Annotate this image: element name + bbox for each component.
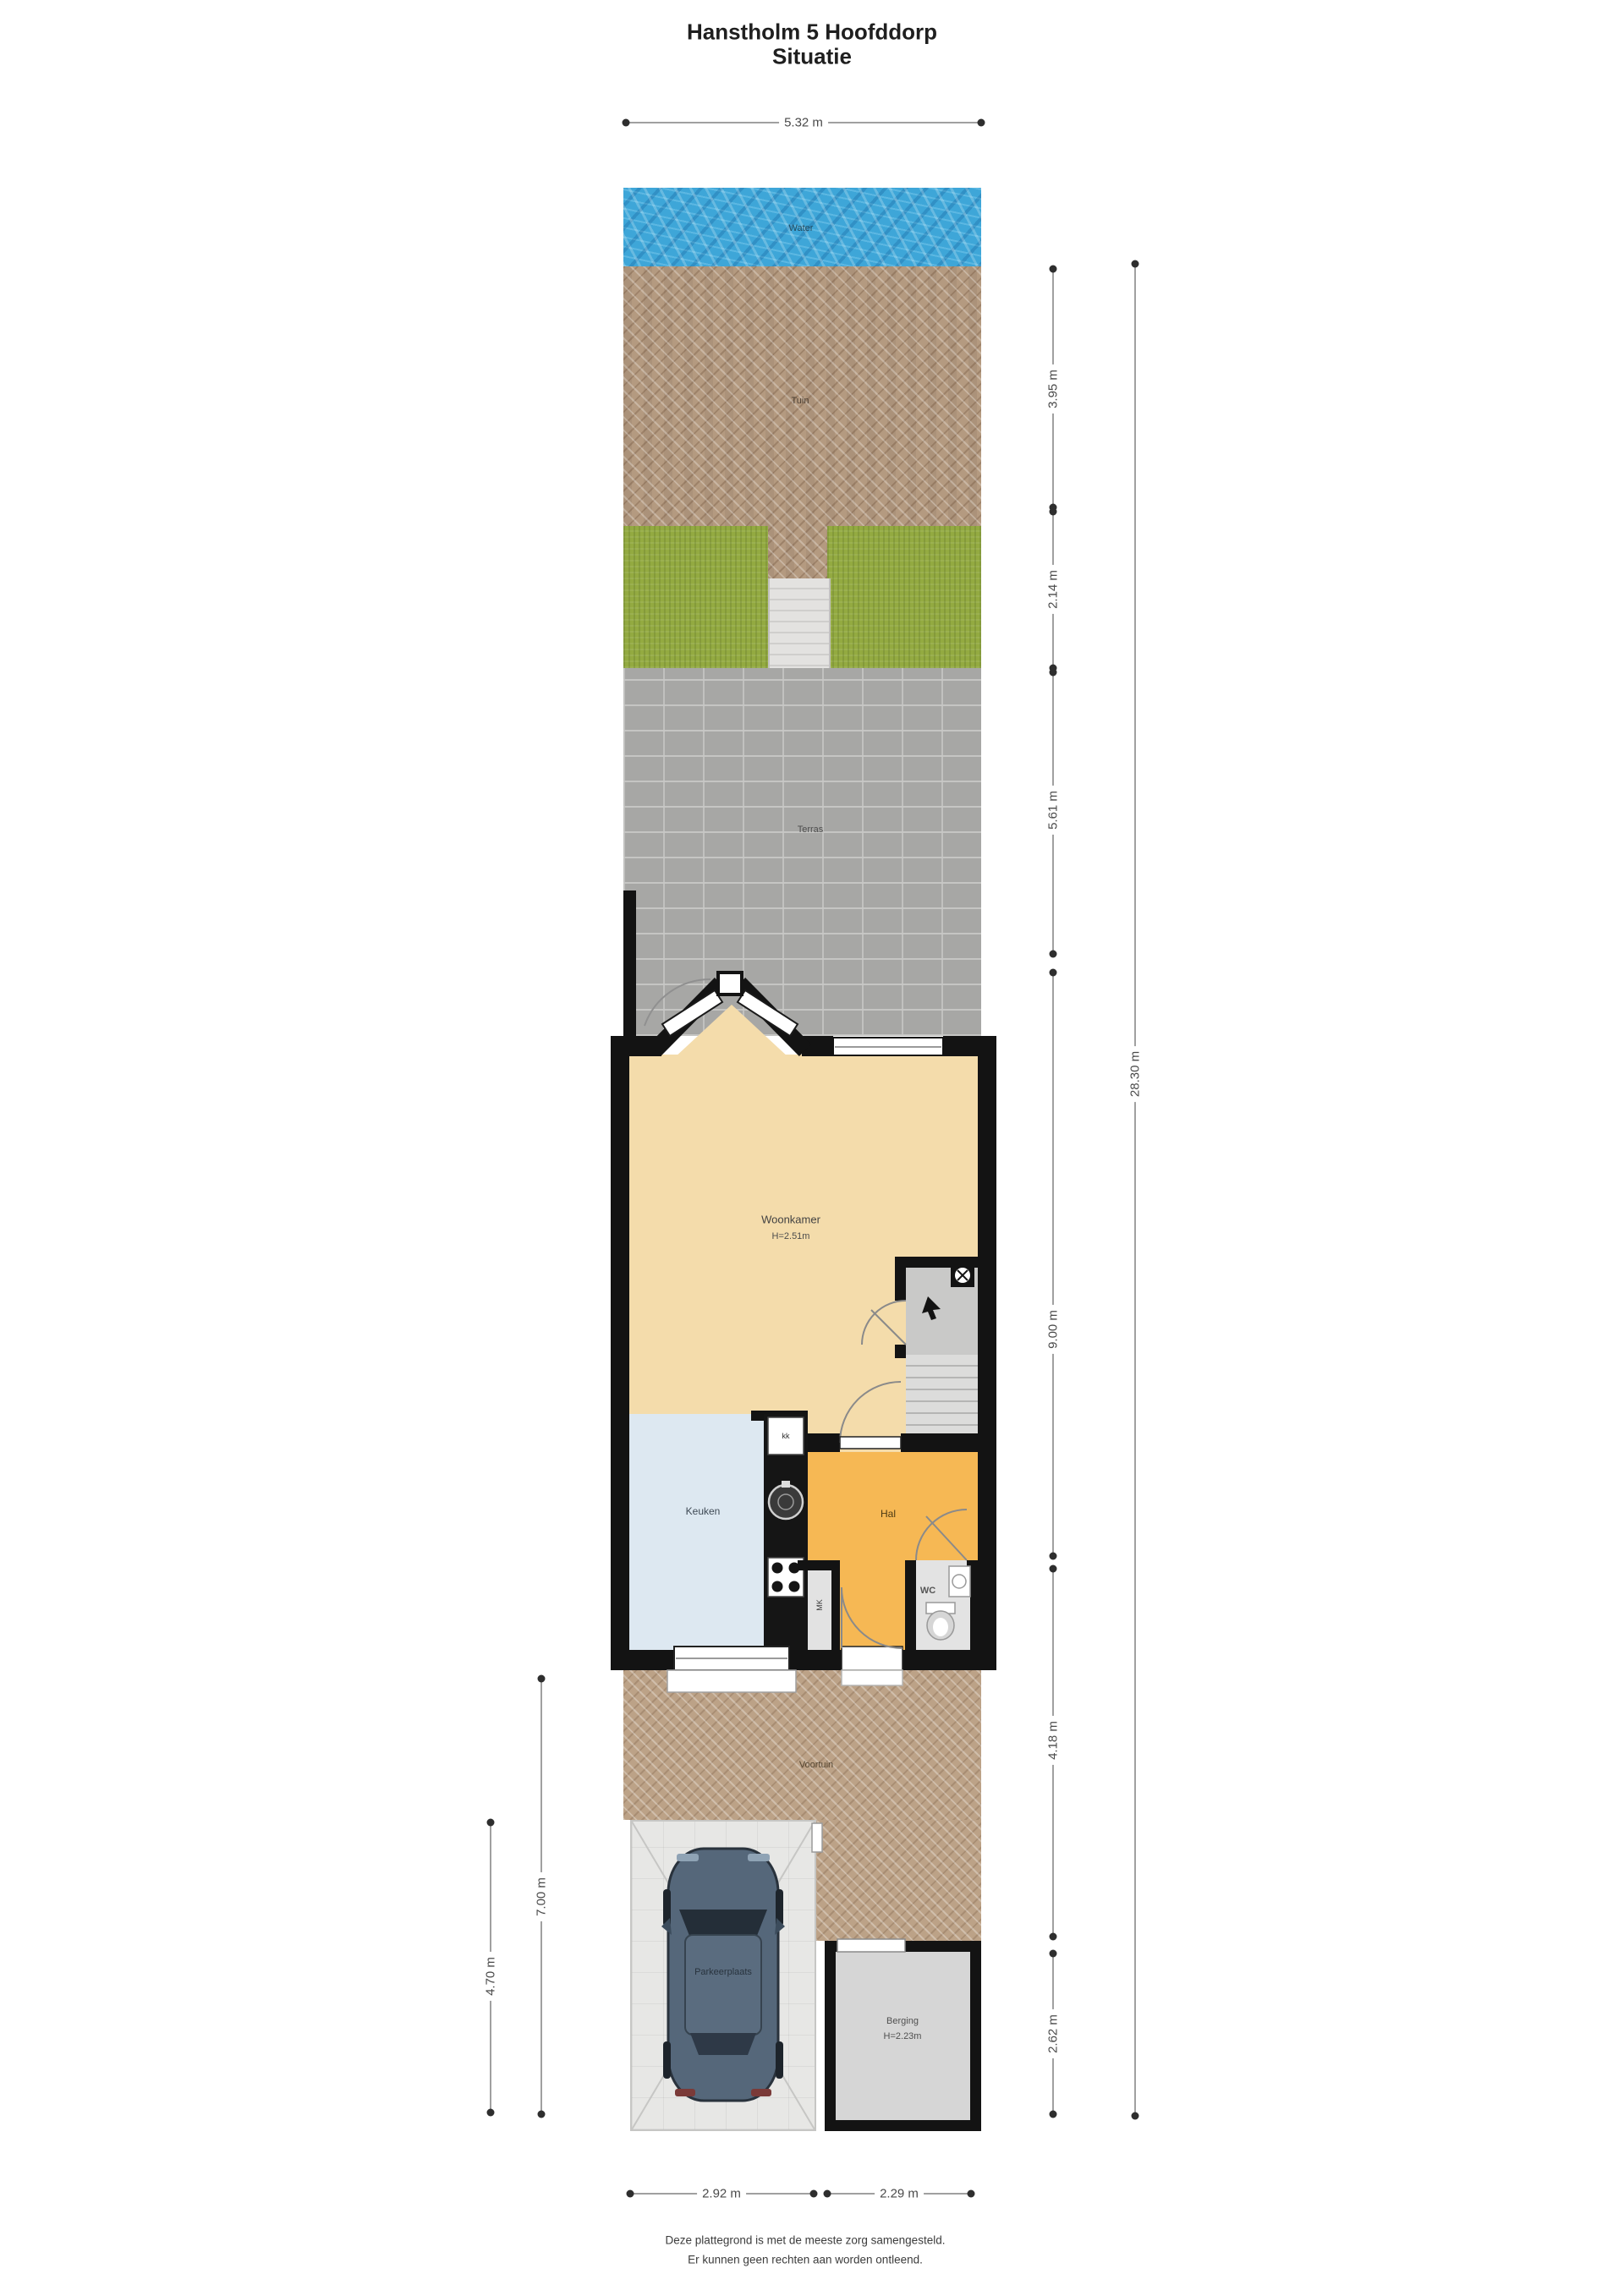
hall-label: Hal <box>881 1508 896 1520</box>
wc-label: WC <box>920 1586 935 1596</box>
kitchen-label: Keuken <box>686 1505 721 1517</box>
storage-label: Berging <box>886 2016 919 2026</box>
page-title-line2: Situatie <box>772 44 852 70</box>
sink-icon <box>769 1485 803 1519</box>
dim-bottom-2: 2.29 m <box>875 2187 924 2201</box>
page-title-line1: Hanstholm 5 Hoofddorp <box>687 19 937 46</box>
dim-bottom-1: 2.92 m <box>697 2187 746 2201</box>
dim-right-total: 28.30 m <box>1128 1046 1143 1102</box>
meter-cupboard-label: MK <box>815 1599 824 1611</box>
dim-right-4: 9.00 m <box>1046 1305 1061 1354</box>
terrace-label: Terras <box>798 825 824 835</box>
storage-height-label: H=2.23m <box>884 2031 922 2041</box>
parking-label: Parkeerplaats <box>694 1967 752 1977</box>
toilet-icon <box>926 1603 955 1640</box>
vent-icon <box>951 1263 974 1287</box>
front-garden-label: Voortuin <box>799 1760 833 1770</box>
floorplan-vector-layer <box>0 0 1624 2296</box>
dim-right-2: 2.14 m <box>1046 565 1061 614</box>
disclaimer-line2: Er kunnen geen rechten aan worden ontlee… <box>688 2254 923 2266</box>
dim-left-inner: 4.70 m <box>484 1952 498 2001</box>
dim-right-6: 2.62 m <box>1046 2009 1061 2058</box>
dim-right-3: 5.61 m <box>1046 786 1061 835</box>
dim-right-5: 4.18 m <box>1046 1716 1061 1765</box>
water-label: Water <box>789 223 814 233</box>
fridge-label: kk <box>782 1432 790 1440</box>
dim-top: 5.32 m <box>779 116 828 130</box>
basin-icon <box>949 1566 970 1597</box>
dim-right-1: 3.95 m <box>1046 364 1061 414</box>
living-room-height-label: H=2.51m <box>772 1231 810 1241</box>
dim-left-outer: 7.00 m <box>535 1872 549 1921</box>
living-room-label: Woonkamer <box>761 1214 820 1226</box>
floorplan-canvas: Hanstholm 5 Hoofddorp Situatie Water Tui… <box>0 0 1624 2296</box>
garden-label: Tuin <box>792 396 809 406</box>
disclaimer-line1: Deze plattegrond is met de meeste zorg s… <box>666 2234 946 2247</box>
